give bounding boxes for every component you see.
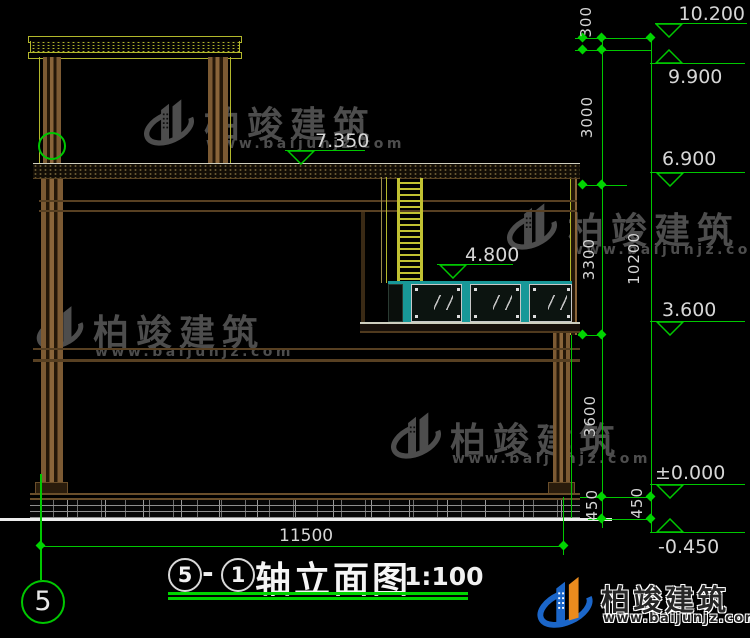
dim-label-lower: 3600: [581, 395, 599, 437]
watermark-logo-icon: [140, 92, 198, 156]
wall-edge-line: [386, 177, 387, 283]
elevation-label: -0.450: [658, 536, 719, 558]
roof-beam-line: [39, 210, 577, 212]
dim-tick: [646, 514, 656, 524]
dim-label-upper: 3300: [580, 238, 598, 280]
dim-line-bottom: [40, 546, 565, 547]
elevation-label: 3.600: [662, 299, 716, 321]
glass-panel: [411, 284, 462, 322]
dim-tick: [597, 33, 607, 43]
balcony-slab: [360, 322, 580, 333]
elevation-label: 6.900: [662, 148, 716, 170]
drawing-scale: 1:100: [404, 562, 484, 591]
dim-label-plinth-outer: 450: [628, 487, 646, 519]
main-column-right: [553, 333, 570, 482]
main-column-left: [41, 177, 63, 482]
railing-post: [521, 284, 529, 322]
tower-wall-edge-right: [230, 57, 231, 163]
elevation-label: 4.800: [465, 244, 519, 266]
tower-column-right: [208, 57, 228, 163]
elevation-label: ±0.000: [655, 462, 725, 484]
detail-circle-marker: [38, 132, 66, 160]
dim-chain-inner: [602, 38, 603, 528]
brand-url: www.baijunjz.com: [603, 611, 750, 626]
elevation-label: 7.350: [315, 130, 369, 152]
footer-brand-logo: 柏竣建筑 www.baijunjz.com: [533, 573, 750, 635]
watermark-url: www.baijunjz.com: [452, 451, 651, 467]
wall-corner-line: [361, 212, 365, 322]
dim-tick: [36, 541, 46, 551]
floor-beam-line: [33, 348, 580, 350]
ground-line: [0, 518, 612, 521]
glass-panel: [470, 284, 521, 322]
elevation-marker-triangle: [439, 264, 467, 279]
main-roof-slab: [33, 163, 580, 179]
title-underline: [168, 597, 468, 600]
elevation-drawing-canvas: 柏竣建筑 www.baijunjz.com 柏竣建筑 www.baijunjz.…: [0, 0, 750, 638]
elevation-marker-triangle: [287, 150, 315, 165]
dim-chain-outer: [651, 38, 652, 533]
dim-tick: [578, 180, 588, 190]
elevation-marker-line: [650, 63, 745, 64]
tower-roof-slab: [30, 41, 240, 52]
elevation-marker-triangle: [656, 518, 684, 533]
railing-post: [403, 284, 411, 322]
roof-access-ladder: [397, 178, 423, 288]
roof-beam-line: [39, 200, 577, 202]
dim-tick: [646, 33, 656, 43]
dim-label-tower: 3000: [578, 96, 596, 138]
wall-edge-line: [381, 177, 382, 283]
dim-tick: [597, 45, 607, 55]
dim-tick: [578, 330, 588, 340]
glass-railing: [388, 284, 572, 322]
glass-panel: [529, 284, 572, 322]
title-axis-left-bubble: 5: [168, 558, 202, 592]
elevation-marker-triangle: [656, 484, 684, 499]
dim-label-plinth-inner: 450: [583, 489, 601, 521]
title-separator: -: [202, 556, 214, 589]
elevation-marker-triangle: [655, 23, 683, 38]
title-underline: [168, 592, 468, 595]
dim-tick: [578, 45, 588, 55]
plinth-band: [30, 493, 580, 500]
axis-extension-left: [40, 474, 42, 580]
floor-beam-line: [33, 359, 580, 362]
elevation-label: 10.200: [660, 3, 745, 25]
dim-label-parapet: 300: [577, 6, 595, 38]
dim-tick: [559, 541, 569, 551]
watermark-logo-icon: [387, 406, 445, 468]
watermark-url: www.baijunjz.com: [95, 344, 294, 360]
elevation-marker-triangle: [655, 49, 683, 64]
title-axis-right-bubble: 1: [221, 558, 255, 592]
elevation-marker-triangle: [656, 321, 684, 336]
dim-tick: [646, 492, 656, 502]
elevation-marker-triangle: [656, 172, 684, 187]
dim-tick: [597, 180, 607, 190]
elevation-label: 9.900: [668, 66, 722, 88]
elevation-marker-line: [650, 532, 745, 533]
dim-tick: [597, 330, 607, 340]
railing-post: [462, 284, 470, 322]
dim-label-overall-height: 10200: [625, 232, 643, 285]
drawing-title: 轴立面图: [255, 551, 411, 603]
brand-logo-icon: [533, 573, 597, 635]
railing-stub: [388, 284, 403, 322]
axis-bubble: 5: [21, 580, 65, 624]
dim-label-overall-width: 11500: [279, 526, 333, 546]
wall-extension-line: [571, 335, 572, 518]
stone-foundation: [30, 500, 580, 518]
